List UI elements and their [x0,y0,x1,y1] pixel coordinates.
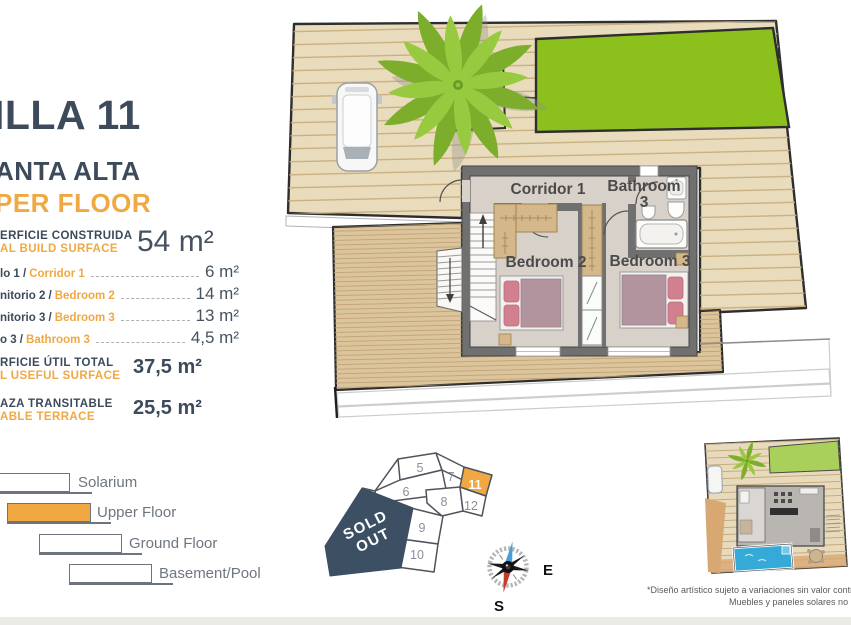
room-area-value: 14 m² [196,284,239,304]
brochure-page: Corridor 1 Bathroom 3 Bedroom 2 Bedroom … [0,0,851,625]
useful-surface-label-en: L USEFUL SURFACE [0,370,120,383]
page-edge-strip [0,617,851,625]
room-area-value: 13 m² [196,306,239,326]
built-surface-label-es: ERFICIE CONSTRUIDA [0,230,132,243]
room-areas-list: lo 1 / Corridor 1 6 m² nitorio 2 / Bedro… [0,262,239,350]
mini-siteplan-inset [705,438,847,573]
sliding-door-panels [582,276,602,345]
mini-lawn [769,441,840,473]
site-plan-drawing: Corridor 1 Bathroom 3 Bedroom 2 Bedroom … [286,1,831,418]
terrace-value: 25,5 m² [133,397,202,420]
room-label-es: nitorio 3 / [0,312,52,324]
legend-label: Basement/Pool [159,565,261,582]
dotted-leader [121,298,190,299]
plot-number: 7 [448,470,455,484]
keyplan: 5 7 6 8 12 9 10 11 SOLD OUT [325,453,492,576]
room-area-row: nitorio 2 / Bedroom 2 14 m² [0,284,239,306]
plot-number: 9 [419,521,426,535]
room-label-en: Corridor 1 [29,268,85,280]
legend-label: Solarium [78,474,137,491]
useful-surface-section: RFICIE ÚTIL TOTAL L USEFUL SURFACE [0,357,120,383]
dotted-leader [96,342,185,343]
villa-title: ILLA 11 [0,92,141,139]
mini-car-icon [708,466,723,493]
plot-number: 10 [410,548,424,562]
useful-surface-value: 37,5 m² [133,356,202,379]
room-label-es: o 3 / [0,334,23,346]
terrace-section: AZA TRANSITABLE ABLE TERRACE [0,398,113,424]
floor-title-en: PER FLOOR [0,188,151,219]
floor-title-es: ANTA ALTA [0,156,141,187]
room-area-row: nitorio 3 / Bedroom 3 13 m² [0,306,239,328]
car-icon [332,83,382,171]
room-label-es: lo 1 / [0,268,26,280]
built-surface-value: 54 m² [137,225,214,259]
exterior-stairs-icon [437,248,462,312]
dotted-leader [91,276,199,277]
disclaimer-line2: Muebles y paneles solares no inclu [729,597,851,607]
room-area-value: 4,5 m² [191,328,239,348]
info-panel: ILLA 11 ANTA ALTA PER FLOOR ERFICIE CONS… [0,0,260,625]
dotted-leader [121,320,190,321]
compass-south-label: S [494,598,504,615]
bed-icon [500,276,563,330]
compass-rose-icon: E S [483,538,553,615]
plot-number: 12 [464,499,478,513]
corridor-label: Corridor 1 [511,181,586,198]
room-area-value: 6 m² [205,262,239,282]
stairs-icon [470,213,496,321]
built-surface-label-en: AL BUILD SURFACE [0,243,132,256]
bathroom-label-number: 3 [640,194,649,211]
room-label-en: Bathroom 3 [26,334,90,346]
mini-house [737,486,840,546]
room-label-en: Bedroom 3 [55,312,115,324]
compass-east-label: E [543,562,553,579]
lawn [536,28,789,132]
bathtub-icon [636,220,687,248]
plot-number: 8 [441,495,448,509]
legend-label: Upper Floor [97,504,176,521]
room-label-es: nitorio 2 / [0,290,52,302]
built-surface-section: ERFICIE CONSTRUIDA AL BUILD SURFACE [0,230,132,256]
useful-surface-label-es: RFICIE ÚTIL TOTAL [0,357,120,370]
legend-label: Ground Floor [129,535,217,552]
plot-number-highlighted: 11 [468,478,481,492]
room-area-row: o 3 / Bathroom 3 4,5 m² [0,328,239,350]
toilet-icon [668,202,684,218]
terrace-label-es: AZA TRANSITABLE [0,398,113,411]
pool-icon [733,544,793,572]
bedroom2-label: Bedroom 2 [506,254,587,271]
plot-number: 6 [403,485,410,499]
plot-number: 5 [417,461,424,475]
bathroom-label: Bathroom [607,178,680,195]
terrace-label-en: ABLE TERRACE [0,411,113,424]
disclaimer-line1: *Diseño artístico sujeto a variaciones s… [647,585,851,595]
terrace-edge-post [335,387,337,418]
room-label-en: Bedroom 2 [55,290,115,302]
room-area-row: lo 1 / Corridor 1 6 m² [0,262,239,284]
bedroom3-label: Bedroom 3 [610,253,691,270]
upper-floor-plan: Corridor 1 Bathroom 3 Bedroom 2 Bedroom … [437,166,697,356]
